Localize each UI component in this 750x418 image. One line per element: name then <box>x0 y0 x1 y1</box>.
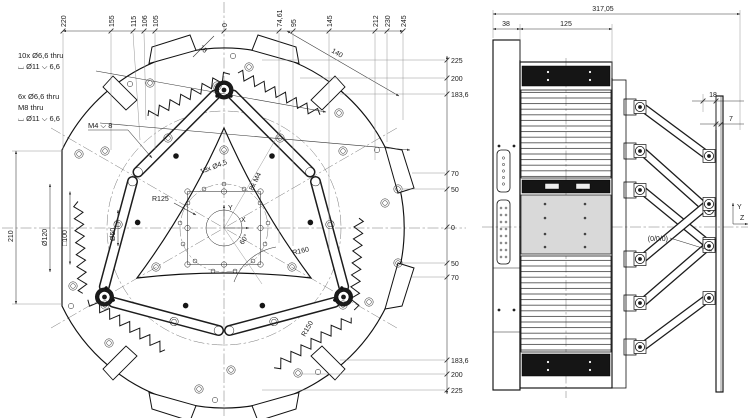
right-dim: 50 <box>451 261 459 268</box>
top-dimension-chain: 220 155 115 106 105 0 74,61 95 145 212 2… <box>61 9 408 250</box>
angle-60-label: 60° <box>238 233 251 246</box>
side-view: 317,05 38 125 18 7 (0/0/0) Y Z <box>482 6 748 398</box>
top-dim: 145 <box>327 15 334 27</box>
dim-125-label: 125 <box>560 21 572 28</box>
side-struts <box>634 101 715 354</box>
callout-6x-line1: 6x Ø6,6 thru <box>18 92 59 101</box>
top-dim: 220 <box>61 15 68 27</box>
right-dim: 0 <box>451 225 455 232</box>
r125-label: R125 <box>152 196 169 203</box>
top-dim: 245 <box>401 15 408 27</box>
housing-bottom-plate <box>522 354 610 376</box>
callout-6x-line3: ⌴ Ø11 ⌵ 6,6 <box>18 114 60 123</box>
dim-d120-label: Ø120 <box>42 229 49 246</box>
right-dim: 225 <box>451 388 463 395</box>
dim-7-label: 7 <box>729 116 733 123</box>
callout-6x-line2: M8 thru <box>18 103 43 112</box>
top-dim: 105 <box>153 15 160 27</box>
dim-total-label: 317,05 <box>592 6 614 13</box>
plate-lobes <box>149 35 414 418</box>
platform-plate-side <box>716 96 723 392</box>
dim-sq100-label: □100 <box>62 230 69 246</box>
dim-38-label: 38 <box>502 21 510 28</box>
top-dim: 0 <box>222 23 229 27</box>
r150-label: R150 <box>301 320 315 338</box>
top-dim: 212 <box>373 15 380 27</box>
right-dim: 200 <box>451 372 463 379</box>
housing-center-plate <box>521 195 611 254</box>
right-dim: 225 <box>451 58 463 65</box>
top-dim: 95 <box>291 19 298 27</box>
dim-210-label: 210 <box>8 230 15 242</box>
side-z-axis-label: Z <box>740 215 745 222</box>
right-dim: 183,6 <box>451 358 469 365</box>
hole-callouts: 10x Ø6,6 thru ⌴ Ø11 ⌵ 6,6 6x Ø6,6 thru M… <box>18 51 410 158</box>
top-dim: 115 <box>131 16 138 27</box>
front-x-axis-label: X <box>241 217 246 224</box>
top-dim: 106 <box>142 15 149 27</box>
right-dim: 50 <box>451 187 459 194</box>
callout-10x-line1: 10x Ø6,6 thru <box>18 51 63 60</box>
dsub-connector-large <box>497 200 510 264</box>
cooling-fins-top <box>521 90 611 178</box>
dim-18-label: 18 <box>709 92 717 99</box>
front-y-axis-label: Y <box>228 205 233 212</box>
origin-label: (0/0/0) <box>648 236 668 243</box>
callout-m4-label: M4 ⌵ 8 <box>88 121 112 130</box>
side-y-axis-label: Y <box>737 204 742 211</box>
top-dim: 74,61 <box>277 9 284 27</box>
callout-10x-line2: ⌴ Ø11 ⌵ 6,6 <box>18 62 60 71</box>
cooling-fins-bottom <box>521 256 611 352</box>
front-axes: Y X <box>224 205 249 228</box>
dim-140-label: 140 <box>330 48 344 60</box>
r160-label: R160 <box>292 246 310 257</box>
right-dim: 70 <box>451 171 459 178</box>
dim-d50-label: Ø50 <box>110 228 117 241</box>
housing-mid-rail <box>522 180 610 193</box>
right-dim: 200 <box>451 76 463 83</box>
dim-18-label: 18 <box>198 44 209 54</box>
housing-top-plate <box>522 66 610 86</box>
dsub-connector-small <box>497 150 510 192</box>
right-dim: 183,6 <box>451 92 469 99</box>
technical-drawing-page: Y X 60° 13x Ø4,5 8x M4 R125 R160 R150 14… <box>0 0 750 418</box>
right-dim: 70 <box>451 275 459 282</box>
top-dim: 230 <box>385 15 392 27</box>
hexapod-drawing: Y X 60° 13x Ø4,5 8x M4 R125 R160 R150 14… <box>0 0 750 418</box>
side-axes: Y Z <box>733 203 748 224</box>
top-dim: 155 <box>109 15 116 27</box>
front-view: Y X 60° 13x Ø4,5 8x M4 R125 R160 R150 14… <box>2 2 469 418</box>
